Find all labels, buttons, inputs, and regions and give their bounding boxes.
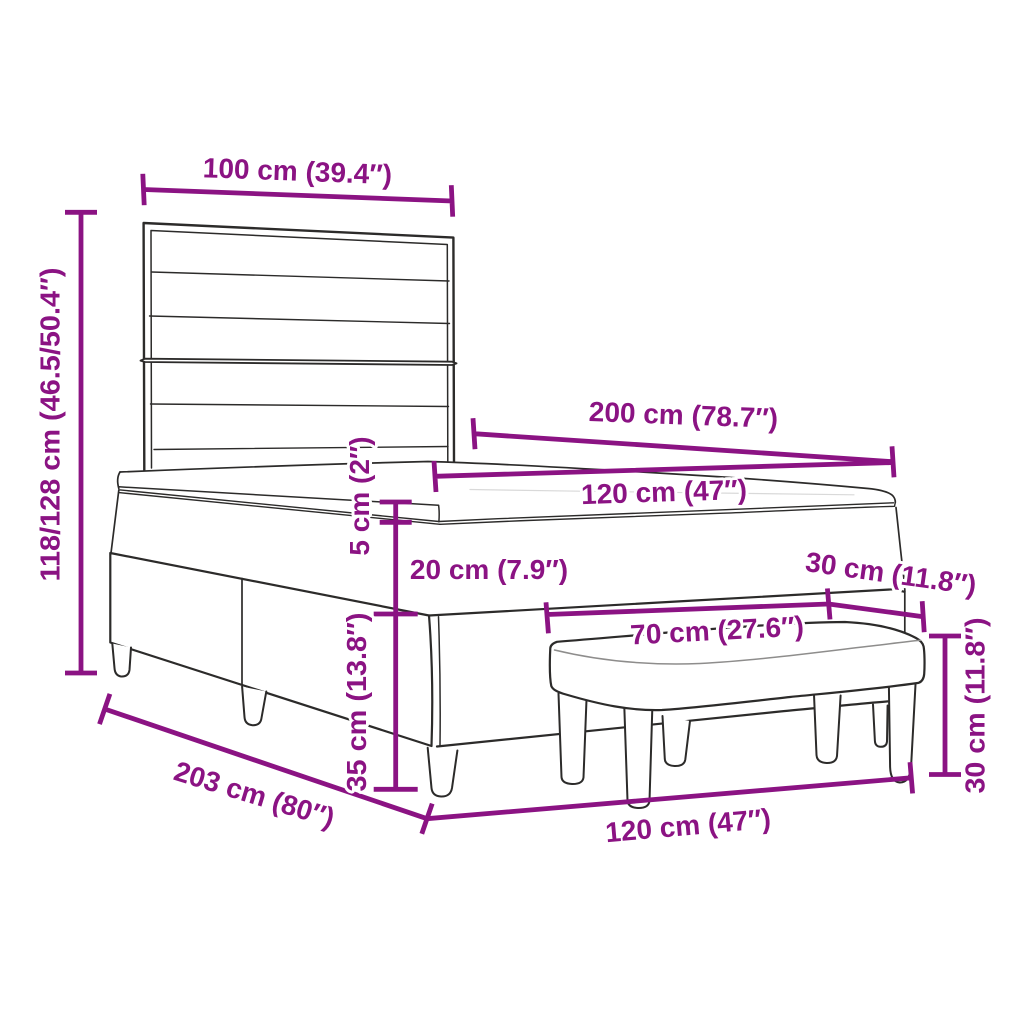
svg-text:120 cm (47″): 120 cm (47″) xyxy=(581,474,748,510)
svg-text:35 cm (13.8″): 35 cm (13.8″) xyxy=(341,613,372,792)
svg-text:20 cm (7.9″): 20 cm (7.9″) xyxy=(410,554,568,585)
svg-text:30 cm (11.8″): 30 cm (11.8″) xyxy=(960,618,991,794)
svg-text:118/128 cm (46.5/50.4″): 118/128 cm (46.5/50.4″) xyxy=(35,268,66,582)
svg-text:5 cm (2″): 5 cm (2″) xyxy=(344,436,375,555)
